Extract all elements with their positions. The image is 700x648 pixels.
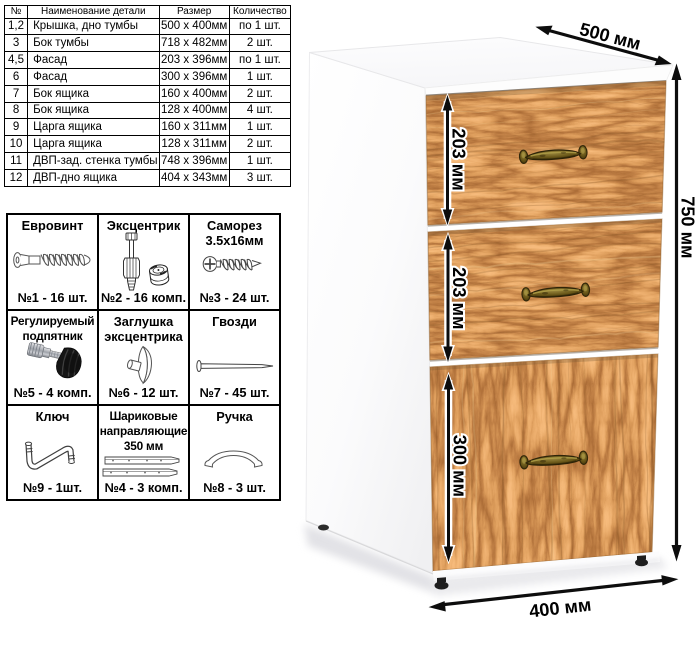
svg-text:750 мм: 750 мм xyxy=(678,196,698,258)
svg-text:203 мм: 203 мм xyxy=(449,267,469,329)
svg-text:300 мм: 300 мм xyxy=(450,435,470,497)
svg-text:203 мм: 203 мм xyxy=(449,128,469,190)
svg-text:400 мм: 400 мм xyxy=(528,595,592,622)
